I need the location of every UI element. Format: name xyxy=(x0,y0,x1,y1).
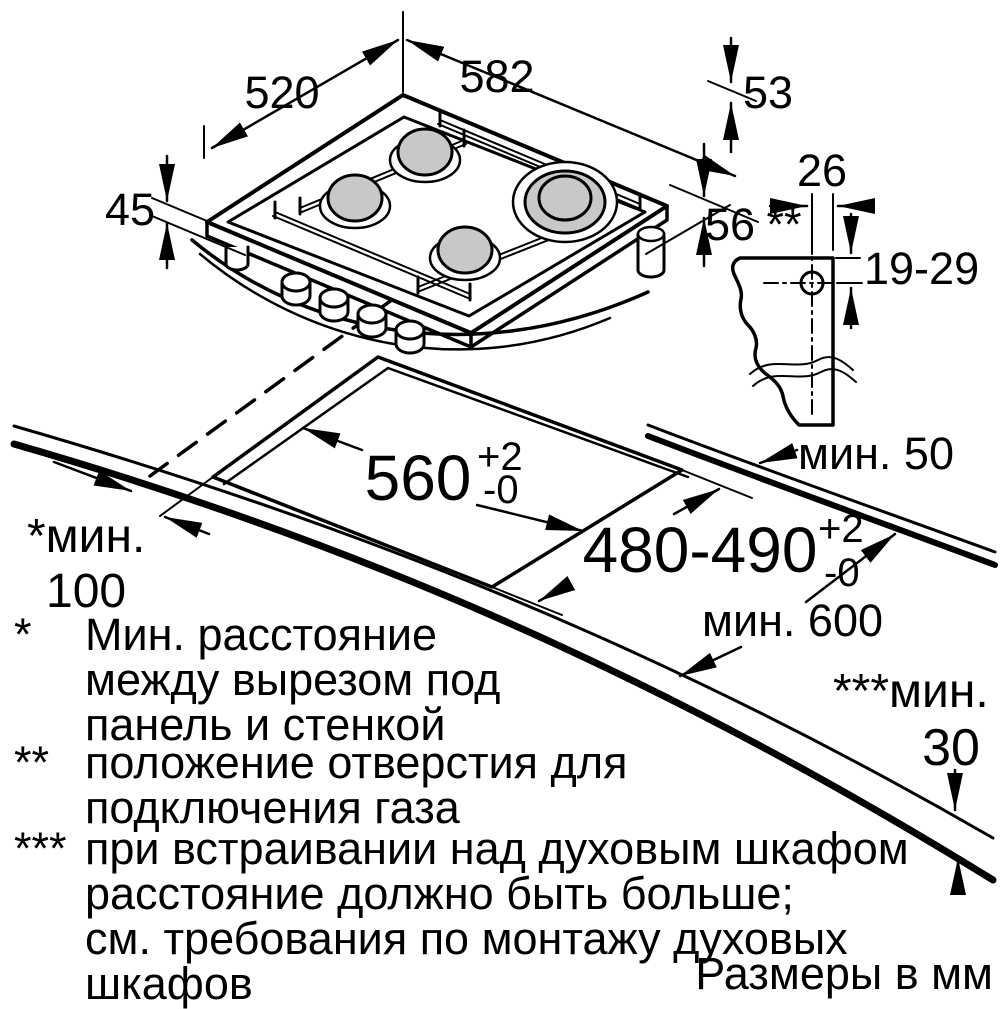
burner-cap-back xyxy=(398,129,452,175)
clearance-rear-label: мин. 50 xyxy=(798,428,954,479)
units-note: Размеры в мм xyxy=(695,951,993,996)
footnote-text: положение отверстия для подключения газа xyxy=(85,740,627,830)
gas-connection-detail xyxy=(733,238,856,425)
arrow-min100-right xyxy=(165,517,209,534)
arrow-min600-front xyxy=(680,647,741,676)
burner-cap-left xyxy=(328,175,382,221)
cutout-ext-left xyxy=(160,477,213,516)
hob-foot-right-top xyxy=(638,227,664,241)
dim-480-490-label: 480-490 xyxy=(583,514,818,586)
footnote-marker: *** xyxy=(14,826,85,1006)
clearance-wall-label-1: *мин. xyxy=(27,510,145,563)
hob-foot-left xyxy=(226,247,248,270)
footnote-line: между вырезом под xyxy=(85,657,500,702)
footnote-gas-hole: ** положение отверстия для подключения г… xyxy=(14,740,627,830)
arrow-480-upper xyxy=(674,489,719,514)
dim-45-label: 45 xyxy=(105,184,155,235)
footnote-line: положение отверстия для xyxy=(85,740,627,785)
dim-56-label: 56 xyxy=(705,199,755,250)
clearance-depth-label: мин. 600 xyxy=(702,595,883,646)
clearance-oven-label-2: 30 xyxy=(922,719,980,777)
footnote-text: Мин. расстояние между вырезом под панель… xyxy=(85,612,500,747)
gas-footnote-marker: ** xyxy=(766,199,801,250)
hob-drawing xyxy=(192,95,667,353)
footnote-marker: ** xyxy=(14,740,85,830)
dim-480-tol-minus: -0 xyxy=(824,551,860,595)
footnote-line: расстояние должно быть больше; xyxy=(85,871,909,916)
ext-lines-26 xyxy=(812,194,833,254)
footnote-marker: * xyxy=(14,612,85,747)
clearance-oven-label-1: ***мин. xyxy=(833,665,989,718)
dim-19-29-label: 19-29 xyxy=(864,243,979,294)
wok-burner-cap xyxy=(539,176,591,220)
burner-cap-front xyxy=(438,227,492,273)
cutout-ext-bottom xyxy=(492,587,562,615)
arrow-480-lower xyxy=(539,586,566,601)
ext-lines-19-29 xyxy=(836,258,862,283)
dim-560-label: 560 xyxy=(365,442,472,514)
dim-520-label: 520 xyxy=(244,67,319,118)
dim-560-tol-minus: -0 xyxy=(483,468,519,512)
arrow-560-upper xyxy=(303,428,362,450)
footnote-line: Мин. расстояние xyxy=(85,612,500,657)
footnote-line: при встраивании над духовым шкафом xyxy=(85,826,909,871)
dim-26-label: 26 xyxy=(797,145,847,196)
dim-480-tol-plus: +2 xyxy=(818,507,864,551)
dim-53-label: 53 xyxy=(743,67,793,118)
footnote-cutout-wall: * Мин. расстояние между вырезом под пане… xyxy=(14,612,500,747)
dim-582-label: 582 xyxy=(459,51,534,102)
arrow-min50 xyxy=(760,450,797,463)
